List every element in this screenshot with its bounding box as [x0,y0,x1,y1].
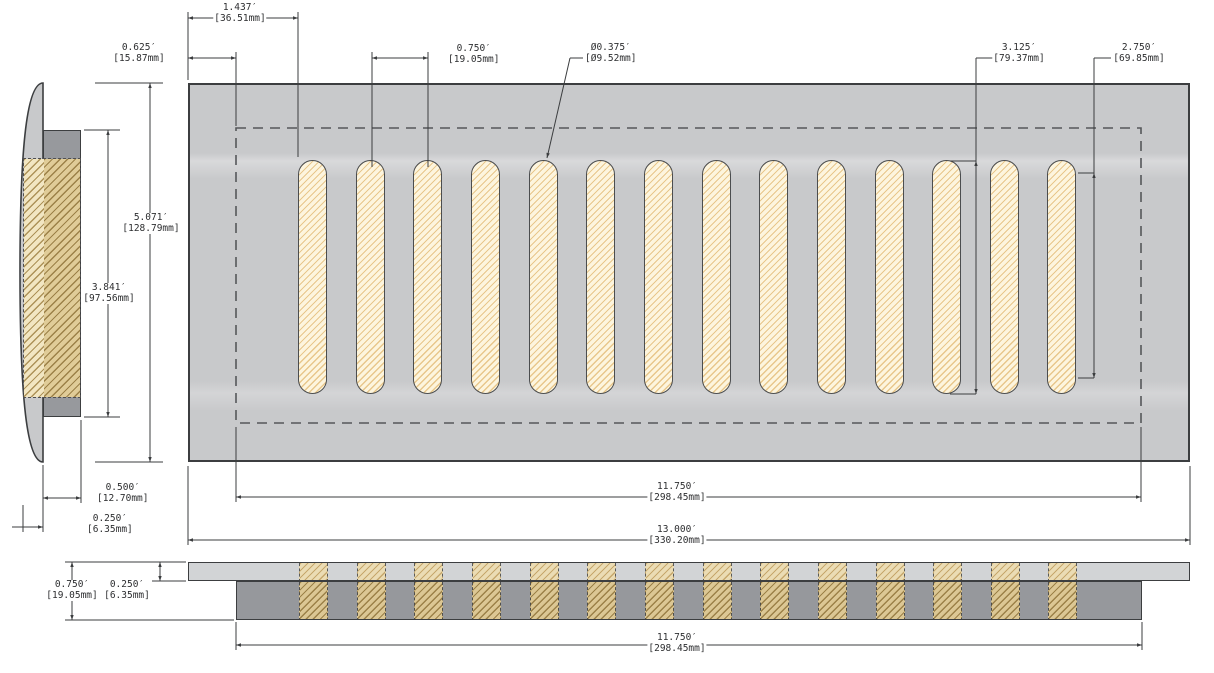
vent-slot [990,160,1019,394]
vent-slot [529,160,558,394]
vent-slot [413,160,442,394]
dimension-label-0750-slots: 0.750′[19.05mm] [447,44,500,65]
dimension-label-11750-duct: 11.750′[298.45mm] [647,633,706,654]
dimension-label-5071: 5.071′[128.79mm] [121,213,180,234]
dimension-label-3841: 3.841′[97.56mm] [82,283,135,304]
vent-slot [644,160,673,394]
dimension-label-3125: 3.125′[79.37mm] [992,43,1045,64]
technical-drawing: 1.437′[36.51mm] 0.625′[15.87mm] 0.750′[1… [0,0,1214,673]
dimension-label-13000: 13.000′[330.20mm] [647,525,706,546]
vent-slot [586,160,615,394]
vent-slot [875,160,904,394]
dimension-label-1437: 1.437′[36.51mm] [213,3,266,24]
vent-slot [356,160,385,394]
dimension-label-0250-side: 0.250′[6.35mm] [86,514,134,535]
vent-slot [817,160,846,394]
vent-slot [702,160,731,394]
vent-slot [471,160,500,394]
dimension-label-0500: 0.500′[12.70mm] [96,483,149,504]
dimension-label-0625: 0.625′[15.87mm] [112,43,165,64]
dimension-label-0375-diameter: Ø0.375′[Ø9.52mm] [584,43,637,64]
dimension-label-2750: 2.750′[69.85mm] [1112,43,1165,64]
vent-slot [298,160,327,394]
vent-slot [1047,160,1076,394]
vent-slot [932,160,961,394]
vent-slot [759,160,788,394]
dimension-label-11750-face: 11.750′[298.45mm] [647,482,706,503]
dimension-label-0250-plate: 0.250′[6.35mm] [103,580,151,601]
slots-layer [0,0,1214,673]
dimension-label-0750-height: 0.750′[19.05mm] [45,580,98,601]
